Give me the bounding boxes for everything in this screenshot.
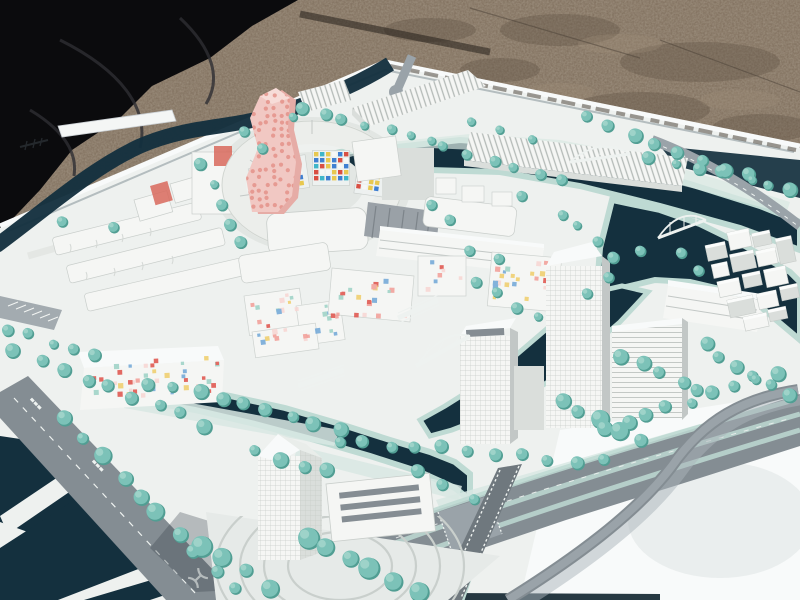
- tree: [660, 401, 665, 406]
- tree: [212, 567, 217, 572]
- tree: [593, 412, 601, 420]
- facade-dot: [257, 320, 262, 325]
- facade-dot: [504, 282, 509, 287]
- facade-dot: [129, 388, 132, 391]
- tree: [78, 434, 83, 439]
- mosaic-tile: [332, 158, 336, 162]
- facade-dot: [495, 266, 501, 272]
- facade-dot: [348, 288, 352, 292]
- tree: [490, 449, 496, 455]
- tree: [444, 215, 454, 225]
- tree: [743, 169, 749, 175]
- tree: [216, 392, 229, 405]
- tree: [296, 102, 308, 114]
- tree: [659, 400, 671, 412]
- mosaic-tile: [326, 152, 330, 156]
- tree: [298, 528, 318, 548]
- tree: [387, 124, 396, 133]
- facade-dot: [266, 324, 270, 328]
- facade-dot: [117, 370, 122, 375]
- tree: [706, 387, 712, 393]
- tree: [387, 443, 392, 448]
- tree: [210, 180, 218, 188]
- facade-dot: [354, 313, 359, 318]
- tree: [604, 273, 609, 278]
- tree: [427, 201, 432, 206]
- tree: [109, 223, 114, 228]
- tree: [648, 138, 660, 150]
- facade-dot: [331, 313, 336, 318]
- tree: [694, 164, 699, 169]
- mosaic-tile: [344, 158, 348, 162]
- tree: [649, 139, 654, 144]
- tree: [96, 448, 103, 455]
- tree: [469, 494, 479, 504]
- facade-dot: [155, 379, 160, 384]
- tree: [556, 174, 566, 184]
- tree: [529, 136, 533, 140]
- tree: [572, 406, 577, 411]
- tree: [654, 367, 659, 372]
- tree: [356, 435, 368, 447]
- facade-dot: [339, 295, 344, 300]
- tree: [68, 344, 78, 354]
- facade-dot: [184, 385, 189, 390]
- tree: [409, 582, 427, 600]
- mosaic-tile: [344, 152, 348, 156]
- tree: [701, 337, 714, 350]
- tree: [693, 265, 703, 275]
- tree: [688, 399, 692, 403]
- tree: [535, 169, 545, 179]
- facade-dot: [387, 290, 390, 293]
- pink-dot: [271, 106, 275, 110]
- tree: [783, 182, 797, 196]
- tree: [287, 411, 297, 421]
- facade-dot: [144, 364, 148, 368]
- tree: [263, 581, 271, 589]
- pink-dot: [252, 183, 256, 187]
- facade-dot: [202, 376, 206, 380]
- tree: [194, 384, 209, 399]
- tree: [599, 455, 604, 460]
- facade-dot: [211, 383, 216, 388]
- tree: [582, 288, 592, 298]
- mosaic-tile: [344, 176, 348, 180]
- tree: [193, 538, 202, 547]
- tree: [195, 159, 200, 164]
- tree: [335, 437, 345, 447]
- tree: [300, 462, 305, 467]
- tree: [729, 382, 734, 387]
- tree: [495, 126, 503, 134]
- tree: [174, 529, 180, 535]
- tree: [491, 157, 496, 162]
- tree: [528, 135, 536, 143]
- mosaic-tile: [362, 185, 367, 190]
- facade-dot: [154, 359, 159, 364]
- tree: [598, 454, 609, 465]
- tree: [489, 448, 501, 460]
- tree: [511, 302, 522, 313]
- tree: [320, 108, 331, 119]
- tree: [407, 131, 415, 139]
- tower-podium: [514, 366, 544, 430]
- tree: [344, 552, 351, 559]
- tree: [218, 394, 224, 400]
- model-photo: [0, 0, 800, 600]
- tree: [571, 405, 583, 417]
- facade-dot: [216, 362, 220, 366]
- tree: [640, 409, 646, 415]
- tree: [58, 412, 65, 419]
- tree: [636, 247, 641, 252]
- facade-dot: [128, 364, 131, 367]
- tree: [386, 574, 394, 582]
- tree: [748, 176, 756, 184]
- tree: [512, 303, 517, 308]
- tree: [194, 158, 206, 170]
- tree: [357, 436, 362, 441]
- tree: [358, 557, 378, 577]
- facade-dot: [512, 282, 517, 287]
- pink-dot: [273, 203, 277, 207]
- mosaic-tile: [314, 176, 318, 180]
- tree: [238, 398, 243, 403]
- tree: [360, 559, 369, 568]
- facade-dot: [283, 328, 287, 332]
- tree: [436, 479, 447, 490]
- tower-podium-annex: [326, 473, 435, 542]
- pink-dot: [273, 119, 277, 123]
- tree: [156, 401, 161, 406]
- tree: [321, 464, 327, 470]
- tree: [772, 368, 778, 374]
- pink-dot: [280, 120, 284, 124]
- facade-dot: [362, 313, 366, 317]
- facade-dot: [265, 336, 270, 341]
- tree: [624, 417, 630, 423]
- pink-dot: [271, 163, 275, 167]
- tree: [239, 126, 249, 136]
- tree: [677, 248, 682, 253]
- tree: [103, 380, 108, 385]
- tree: [593, 237, 597, 241]
- tree: [198, 420, 205, 427]
- pink-dot: [264, 196, 268, 200]
- tree: [636, 435, 642, 441]
- mosaic-tile: [314, 170, 318, 174]
- facade-dot: [303, 334, 308, 339]
- tallest-tower: [546, 242, 610, 428]
- pink-dot: [251, 205, 255, 209]
- pink-dot: [259, 204, 263, 208]
- tree: [470, 495, 474, 499]
- facade-dot: [536, 261, 541, 266]
- tree: [728, 381, 739, 392]
- pink-dot: [273, 93, 277, 97]
- tree: [438, 141, 447, 150]
- facade-dot: [340, 292, 343, 295]
- tree: [571, 456, 583, 468]
- facade-dot: [94, 390, 99, 395]
- facade-dot: [383, 279, 388, 284]
- facade-dot: [128, 380, 133, 385]
- tree: [468, 118, 472, 122]
- tree: [687, 398, 696, 407]
- tree: [360, 122, 368, 130]
- tree: [212, 548, 230, 566]
- tree: [274, 454, 281, 461]
- tree: [2, 325, 13, 336]
- facade-dot: [294, 307, 298, 311]
- facade-dot: [141, 393, 146, 398]
- pink-dot: [271, 134, 275, 138]
- mosaic-tile: [338, 152, 342, 156]
- tree: [336, 438, 341, 443]
- facade-dot: [315, 328, 321, 334]
- pink-dot: [272, 113, 276, 117]
- pink-dot: [273, 154, 277, 158]
- facade-dot: [290, 296, 294, 300]
- mosaic-tile: [320, 176, 324, 180]
- tree: [496, 126, 500, 130]
- tree: [653, 366, 664, 377]
- pink-dot: [271, 147, 275, 151]
- tree: [225, 220, 230, 225]
- facade-dot: [285, 293, 289, 297]
- facade-dot: [184, 378, 188, 382]
- tree: [168, 383, 172, 387]
- tree: [259, 404, 265, 410]
- tree: [257, 143, 267, 153]
- pink-dot: [286, 168, 290, 172]
- tree: [679, 378, 684, 383]
- facade-dot: [144, 373, 148, 377]
- pink-dot: [280, 134, 284, 138]
- tree: [299, 461, 311, 473]
- pink-dot: [264, 190, 268, 194]
- pink-dot: [250, 196, 254, 200]
- pink-dot: [266, 100, 270, 104]
- tree: [672, 147, 677, 152]
- tree: [782, 388, 796, 402]
- mosaic-tile: [320, 152, 324, 156]
- tree: [167, 382, 177, 392]
- pink-dot: [285, 105, 289, 109]
- tree: [639, 408, 652, 421]
- facade-dot: [329, 329, 333, 333]
- tree: [239, 564, 252, 577]
- mosaic-tile: [314, 158, 318, 162]
- facade-dot: [524, 297, 528, 301]
- tree: [714, 352, 719, 357]
- facade-dot: [324, 304, 328, 308]
- facade-dot: [272, 329, 278, 335]
- facade-dot: [204, 356, 209, 361]
- facade-dot: [493, 280, 499, 286]
- tree: [174, 407, 185, 418]
- tree: [516, 448, 527, 459]
- facade-dot: [150, 363, 154, 367]
- tree: [146, 503, 163, 520]
- pink-dot: [264, 167, 268, 171]
- facade-dot: [260, 339, 266, 345]
- mosaic-tile: [338, 170, 342, 174]
- tree: [671, 146, 683, 158]
- mosaic-tile: [332, 152, 336, 156]
- tree: [241, 565, 247, 571]
- pink-dot: [272, 169, 276, 173]
- pink-dot: [287, 183, 291, 187]
- tree: [135, 491, 142, 498]
- facade-dot: [276, 309, 282, 315]
- tree: [234, 236, 245, 247]
- facade-dot: [511, 274, 515, 278]
- tree: [250, 446, 254, 450]
- tree: [289, 113, 297, 121]
- tree: [214, 550, 222, 558]
- tree: [766, 379, 776, 389]
- tree: [495, 255, 500, 260]
- pink-dot: [272, 175, 276, 179]
- tree: [603, 121, 608, 126]
- facade-dot: [540, 271, 546, 277]
- tree: [211, 181, 215, 185]
- facade-dot: [376, 314, 381, 319]
- tree: [752, 375, 756, 379]
- tree: [361, 122, 364, 125]
- tree: [24, 329, 29, 334]
- facade-dot: [183, 369, 187, 373]
- pink-dot: [280, 149, 284, 153]
- tree: [125, 392, 138, 405]
- facade-dot: [530, 271, 534, 275]
- facade-dot: [440, 265, 444, 269]
- pink-dot: [257, 154, 261, 158]
- tree: [3, 326, 8, 331]
- tree: [462, 446, 473, 457]
- tree: [471, 277, 481, 287]
- tree: [388, 125, 392, 129]
- facade-dot: [459, 276, 463, 280]
- facade-dot: [356, 295, 361, 300]
- mosaic-tile: [314, 152, 318, 156]
- tree: [612, 424, 620, 432]
- mosaic-tile: [332, 170, 336, 174]
- tree: [517, 449, 522, 454]
- tree: [581, 111, 591, 121]
- tree: [582, 112, 587, 117]
- tree: [534, 312, 542, 320]
- facade-dot: [371, 284, 376, 289]
- facade-dot: [336, 313, 339, 316]
- tree: [716, 166, 721, 171]
- tree: [542, 456, 547, 461]
- tree: [427, 137, 435, 145]
- facade-dot: [430, 260, 434, 264]
- tree: [494, 254, 504, 264]
- tree: [767, 380, 772, 385]
- mosaic-tile: [375, 180, 380, 185]
- facade-dot: [367, 300, 371, 304]
- pink-dot: [266, 183, 270, 187]
- tree: [305, 416, 319, 430]
- tree: [747, 370, 757, 380]
- tree: [608, 253, 613, 258]
- tree: [784, 389, 790, 395]
- tree: [249, 445, 259, 455]
- tree: [307, 418, 313, 424]
- pink-dot: [280, 114, 284, 118]
- pink-dot: [257, 189, 261, 193]
- tree: [89, 350, 95, 356]
- tree: [334, 422, 348, 436]
- tree: [634, 434, 646, 446]
- scene-canvas: [0, 0, 800, 600]
- tree: [676, 247, 686, 257]
- tree: [611, 422, 628, 439]
- tree: [289, 114, 293, 118]
- facade-dot: [181, 362, 184, 365]
- tree: [101, 379, 113, 391]
- tree: [384, 572, 401, 589]
- tree: [445, 216, 450, 221]
- tree: [771, 366, 785, 380]
- facade-dot: [114, 364, 119, 369]
- tree: [155, 400, 165, 410]
- pink-dot: [287, 142, 291, 146]
- tree: [49, 340, 58, 349]
- tree: [69, 345, 74, 350]
- pink-dot: [264, 120, 268, 124]
- tree: [493, 288, 497, 292]
- tree: [472, 278, 477, 283]
- facade-dot: [426, 287, 431, 292]
- tree: [141, 378, 153, 390]
- pink-dot: [265, 203, 269, 207]
- tree: [175, 408, 180, 413]
- facade-dot: [207, 379, 212, 384]
- tree: [593, 236, 603, 246]
- tree: [230, 583, 235, 588]
- tree: [336, 115, 341, 120]
- tree: [318, 540, 326, 548]
- facade-dot: [99, 377, 103, 381]
- tree: [436, 441, 442, 447]
- tree: [235, 237, 240, 242]
- tree: [601, 119, 613, 131]
- tree: [143, 379, 149, 385]
- tree: [467, 117, 475, 125]
- facade-dot: [274, 336, 279, 341]
- tree: [38, 356, 43, 361]
- tree: [195, 385, 202, 392]
- tree: [57, 363, 70, 376]
- tree: [557, 175, 562, 180]
- tree: [574, 222, 578, 226]
- tree: [705, 385, 718, 398]
- pink-dot: [265, 114, 269, 118]
- tree: [462, 151, 466, 155]
- tree: [638, 357, 644, 363]
- pink-dot: [251, 169, 255, 173]
- tree: [386, 442, 396, 452]
- tree: [672, 160, 680, 168]
- mosaic-tile: [326, 170, 330, 174]
- tree: [148, 504, 156, 512]
- mosaic-tile: [326, 176, 330, 180]
